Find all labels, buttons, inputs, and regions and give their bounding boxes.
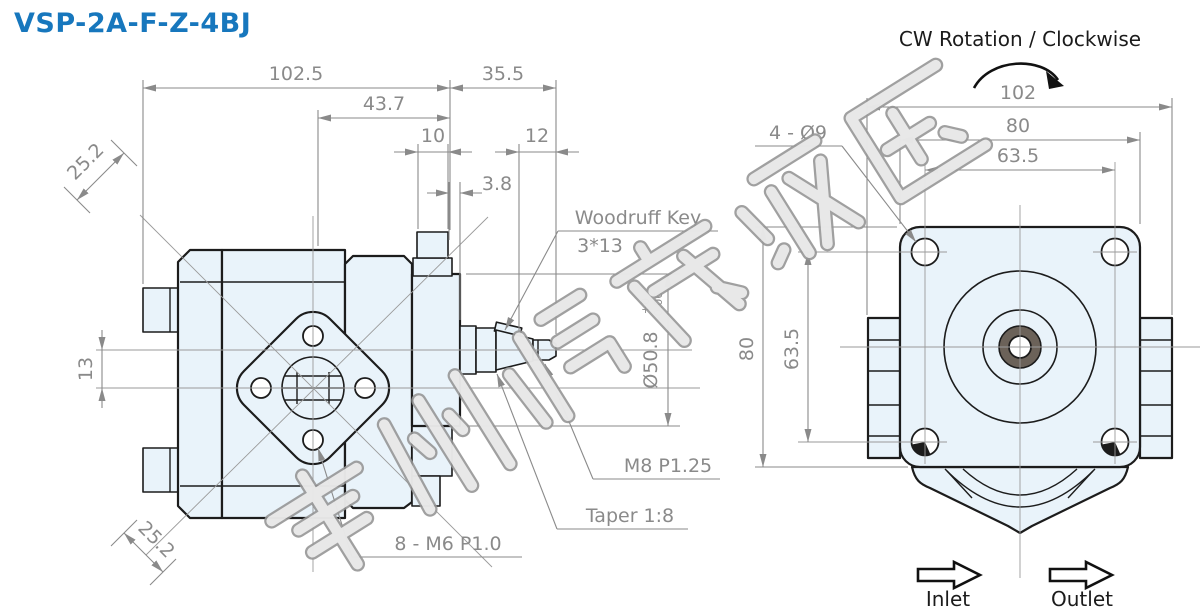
callout-flange-thread-spec: 8 - M6 P1.0 — [394, 533, 501, 555]
flow-labels: Inlet Outlet — [918, 562, 1113, 611]
rotation-label: CW Rotation / Clockwise — [899, 27, 1141, 51]
dim-shaft-extension: 35.5 — [482, 63, 524, 85]
watermark-character — [730, 141, 865, 274]
dim-front-flange-width: 80 — [1006, 115, 1030, 137]
port-boss-right — [1140, 318, 1172, 458]
dim-front-flange-height: 80 — [736, 337, 758, 361]
top-stub-upper — [417, 232, 448, 258]
outlet-label: Outlet — [1051, 587, 1113, 611]
top-stub-lower — [413, 258, 452, 276]
dim-front-bolt-spacing-w: 63.5 — [997, 145, 1039, 167]
dim-thread-length: 12 — [525, 125, 549, 147]
dim-front-bolt-spacing-h: 63.5 — [781, 328, 803, 370]
callout-taper-spec: Taper 1:8 — [585, 505, 674, 527]
dim-diag-bottom: 25.2 — [134, 517, 179, 562]
drawing-canvas: 102.5 35.5 43.7 10 12 3.8 13 25.2 — [0, 0, 1200, 611]
callout-woodruff-key: Woodruff Key — [575, 207, 701, 229]
dim-port-offset: 13 — [75, 357, 97, 381]
dim-front-section: 43.7 — [363, 93, 405, 115]
callout-thread-spec: M8 P1.25 — [624, 455, 712, 477]
rear-port-boss-top — [143, 288, 178, 332]
watermark-character — [851, 65, 986, 198]
dim-diag-top: 25.2 — [63, 139, 108, 184]
dim-overall-length: 102.5 — [269, 63, 323, 85]
port-boss-left — [868, 318, 900, 458]
drawing-sheet: VSP-2A-F-Z-4BJ — [0, 0, 1200, 611]
dim-stub-width: 10 — [421, 125, 445, 147]
dim-pilot-dia: Ø50.8 — [640, 331, 662, 388]
watermark-character — [608, 213, 750, 355]
callout-woodruff-key-size: 3*13 — [577, 235, 623, 257]
rear-port-boss-bottom — [143, 448, 178, 492]
inlet-arrow-icon — [918, 562, 980, 588]
dim-front-overall-width: 102 — [1000, 82, 1036, 104]
cw-arrowhead-icon — [1046, 71, 1064, 89]
inlet-label: Inlet — [926, 587, 970, 611]
dim-key-position: 3.8 — [482, 173, 512, 195]
outlet-arrow-icon — [1050, 562, 1112, 588]
